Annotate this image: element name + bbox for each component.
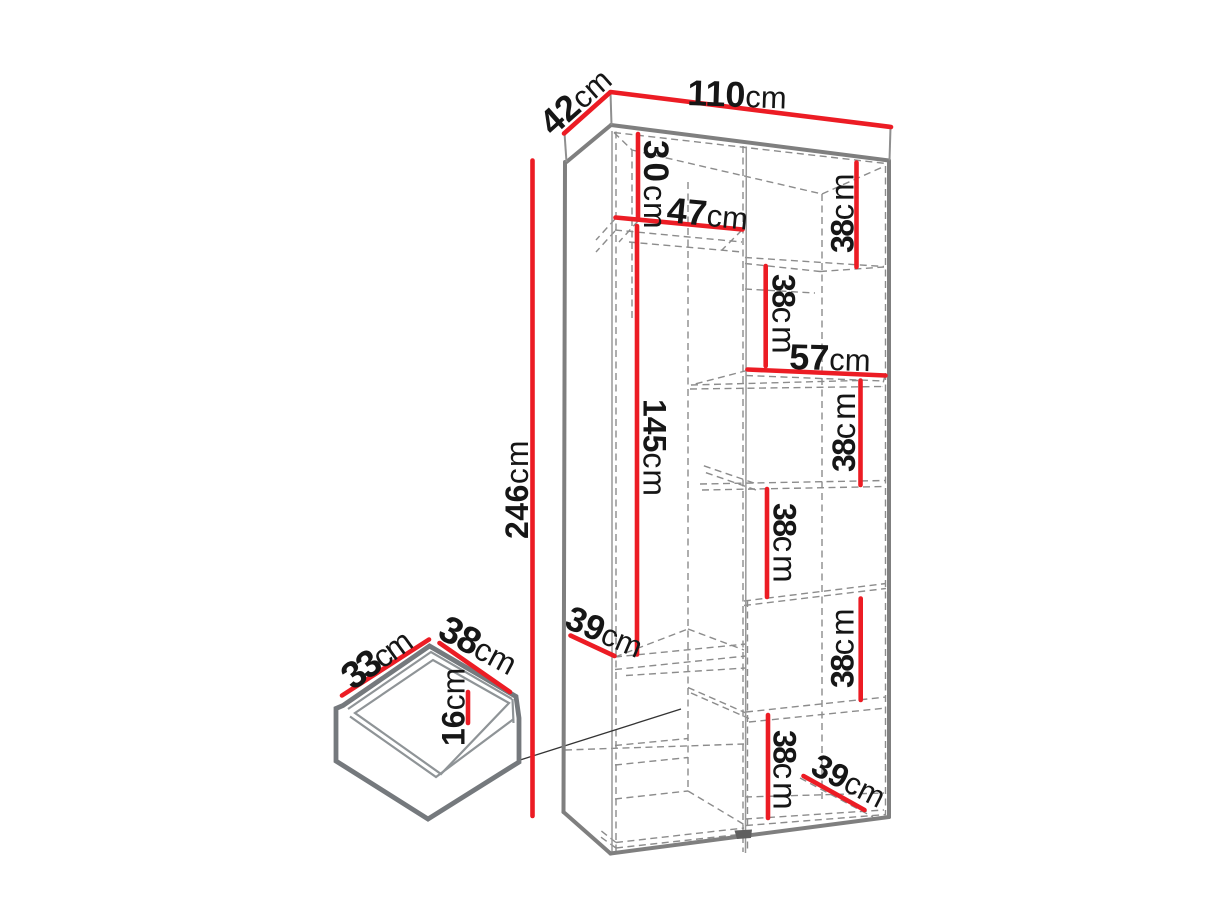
svg-text:38cm: 38cm [767, 730, 804, 813]
svg-text:38cm: 38cm [824, 170, 861, 253]
svg-text:16cm: 16cm [436, 668, 472, 746]
svg-text:38cm: 38cm [767, 503, 804, 586]
svg-text:38cm: 38cm [825, 389, 862, 472]
svg-text:57cm: 57cm [789, 336, 871, 379]
svg-text:145cm: 145cm [637, 399, 673, 497]
svg-text:38cm: 38cm [824, 605, 861, 688]
svg-text:246cm: 246cm [499, 439, 535, 539]
